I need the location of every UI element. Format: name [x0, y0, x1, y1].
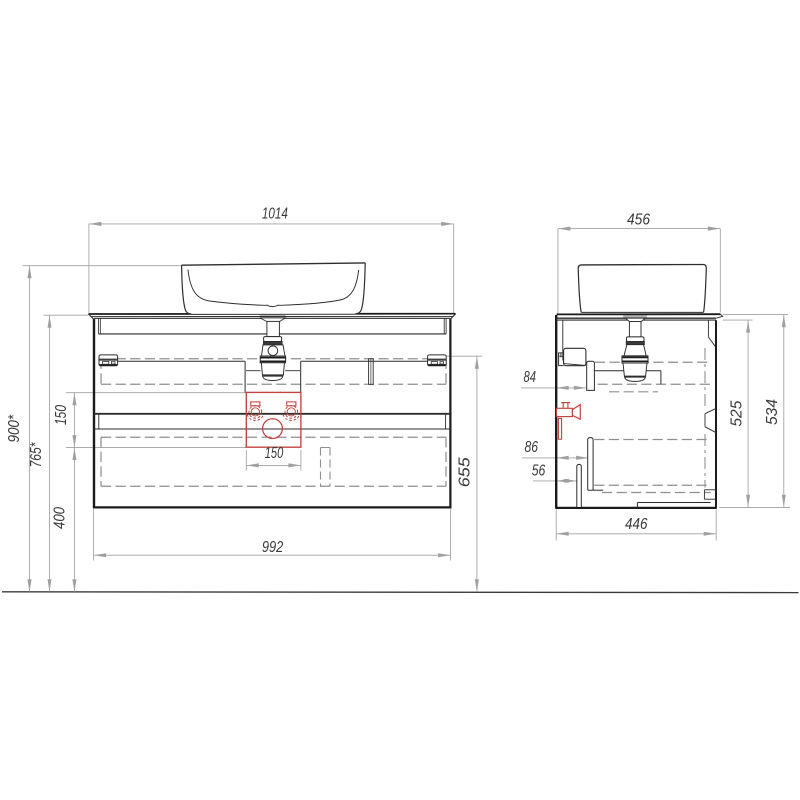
svg-text:446: 446 [625, 516, 648, 533]
svg-text:534: 534 [764, 399, 781, 425]
svg-text:56: 56 [532, 463, 546, 480]
svg-text:900*: 900* [6, 414, 23, 443]
svg-text:655: 655 [456, 457, 473, 487]
svg-text:525: 525 [728, 400, 745, 426]
svg-text:992: 992 [262, 539, 284, 556]
svg-text:765*: 765* [28, 442, 45, 468]
svg-text:1014: 1014 [262, 206, 288, 223]
svg-text:84: 84 [524, 369, 537, 386]
svg-text:456: 456 [627, 212, 650, 229]
svg-text:86: 86 [525, 439, 539, 456]
svg-text:150: 150 [53, 405, 70, 425]
svg-text:400: 400 [52, 507, 69, 529]
svg-text:150: 150 [265, 445, 284, 462]
